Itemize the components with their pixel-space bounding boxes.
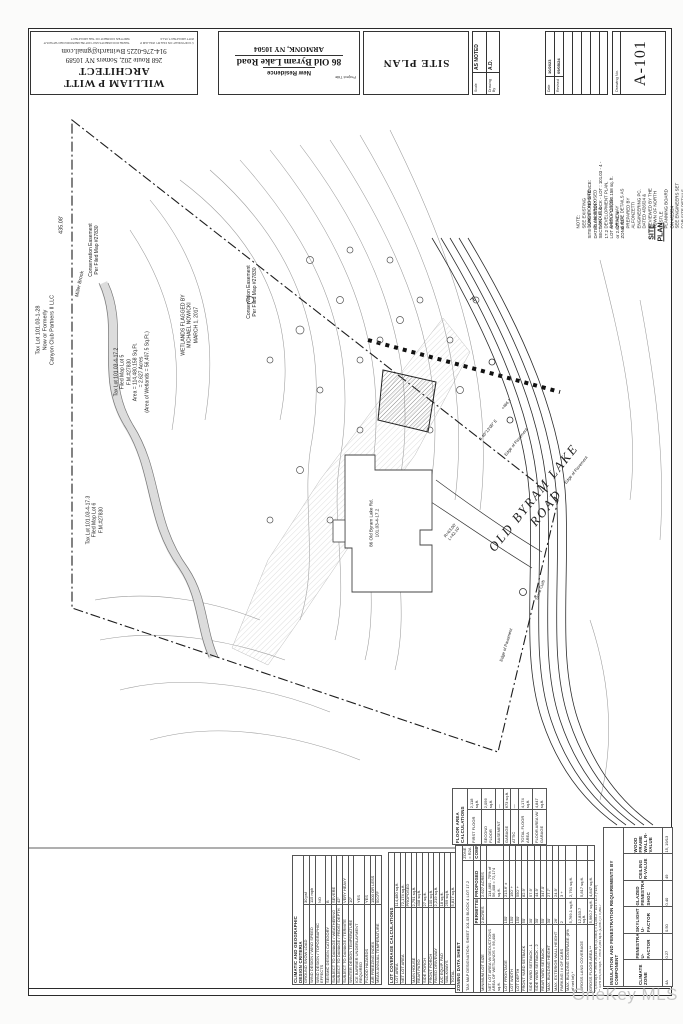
mls-watermark: OneKey MLS (548, 985, 678, 1005)
floor-area-table: FLOOR AREA CALCULATIONSFIRST FLOOR2,118 … (452, 788, 547, 845)
zoning-table: ZONING DATA SHEETTAX MAP DESIGNATION: SH… (455, 845, 603, 993)
insulation-table: INSULATION AND FENESTRATION REQUIREMENTS… (603, 827, 673, 987)
climatic-table: CLIMATIC AND GEOGRAPHIC DESIGN CRITERIAG… (292, 855, 382, 985)
lot-coverage-table: LOT COVERAGE CALCULATIONSLOT AREA114,480… (388, 852, 452, 985)
plan-tables: CLIMATIC AND GEOGRAPHIC DESIGN CRITERIAG… (0, 0, 683, 1024)
site-plan-photo: WILLIAM P WITT ARCHITECT 268 Route 202, … (0, 0, 683, 1024)
